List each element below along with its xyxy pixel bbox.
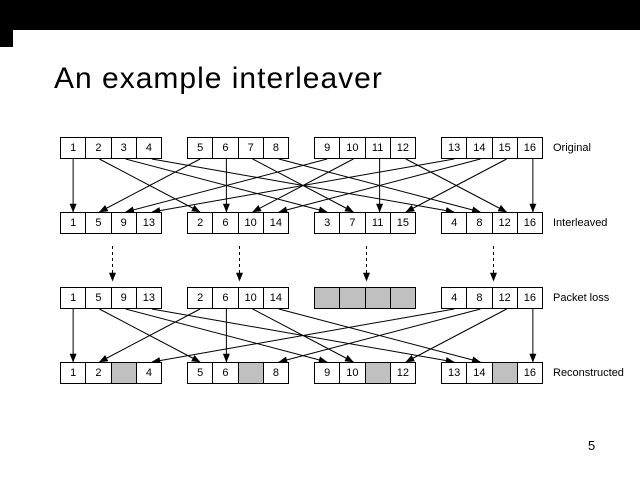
interleave-arrow [279, 159, 481, 212]
data-cell: 11 [365, 212, 391, 234]
cell-group: 481216 [441, 287, 543, 309]
deinterleave-arrow [279, 309, 481, 362]
cell-group: 124 [60, 362, 162, 384]
cell-group: 568 [187, 362, 289, 384]
data-cell: 14 [466, 362, 492, 384]
interleave-arrow [99, 159, 200, 212]
cell-group: 15913 [60, 212, 162, 234]
data-cell: 12 [390, 362, 416, 384]
data-cell: 10 [339, 137, 365, 159]
deinterleave-arrow [152, 309, 454, 362]
data-cell: 15 [390, 212, 416, 234]
lost-cell [365, 362, 391, 384]
cell-group: 1234 [60, 137, 162, 159]
interleave-arrow [152, 159, 454, 212]
lost-cell [238, 362, 264, 384]
data-cell: 6 [212, 212, 238, 234]
lost-cell [314, 287, 340, 309]
data-cell: 7 [238, 137, 264, 159]
interleave-arrow [406, 159, 507, 212]
lost-cell [365, 287, 391, 309]
data-cell: 8 [466, 287, 492, 309]
deinterleave-arrow [99, 309, 200, 362]
data-cell: 2 [85, 137, 111, 159]
page-number: 5 [588, 438, 595, 453]
data-cell: 3 [314, 212, 340, 234]
cell-group: 15913 [60, 287, 162, 309]
interleave-arrow [253, 159, 354, 212]
interleave-arrow [126, 159, 328, 212]
data-cell: 4 [441, 287, 467, 309]
deinterleave-arrow [406, 309, 507, 362]
data-cell: 9 [314, 137, 340, 159]
data-cell: 5 [85, 287, 111, 309]
lost-cell [390, 287, 416, 309]
data-cell: 9 [111, 212, 137, 234]
data-cell: 5 [187, 362, 213, 384]
data-cell: 10 [238, 287, 264, 309]
cell-group: 131416 [441, 362, 543, 384]
data-cell: 16 [517, 137, 543, 159]
data-cell: 16 [517, 212, 543, 234]
data-cell: 7 [339, 212, 365, 234]
data-cell: 4 [136, 362, 162, 384]
data-cell: 13 [136, 212, 162, 234]
row-label-packet-loss: Packet loss [553, 292, 609, 304]
data-cell: 14 [263, 212, 289, 234]
deinterleave-arrow [126, 309, 328, 362]
row-label-interleaved: Interleaved [553, 217, 607, 229]
data-cell: 1 [60, 212, 86, 234]
deinterleave-arrow [279, 309, 481, 362]
cell-group: 371115 [314, 212, 416, 234]
data-cell: 12 [492, 287, 518, 309]
arrows-layer [0, 0, 640, 480]
data-cell: 6 [212, 287, 238, 309]
data-cell: 5 [85, 212, 111, 234]
data-cell: 9 [314, 362, 340, 384]
data-cell: 1 [60, 287, 86, 309]
data-cell: 1 [60, 362, 86, 384]
data-cell: 4 [441, 212, 467, 234]
cell-group: 261014 [187, 287, 289, 309]
interleave-arrow [253, 159, 354, 212]
data-cell: 14 [466, 137, 492, 159]
data-cell: 13 [136, 287, 162, 309]
data-cell: 16 [517, 362, 543, 384]
data-cell: 10 [339, 362, 365, 384]
interleave-arrow [279, 159, 481, 212]
row-label-reconstructed: Reconstructed [553, 367, 624, 379]
data-cell: 13 [441, 362, 467, 384]
cell-group: 13141516 [441, 137, 543, 159]
interleaver-diagram: 12345678910111213141516Original159132610… [0, 0, 640, 480]
data-cell: 6 [212, 137, 238, 159]
data-cell: 14 [263, 287, 289, 309]
interleave-arrow [152, 159, 454, 212]
data-cell: 10 [238, 212, 264, 234]
data-cell: 3 [111, 137, 137, 159]
interleave-arrow [99, 159, 200, 212]
data-cell: 2 [85, 362, 111, 384]
cell-group: 481216 [441, 212, 543, 234]
deinterleave-arrow [99, 309, 200, 362]
deinterleave-arrow [253, 309, 354, 362]
data-cell: 2 [187, 212, 213, 234]
interleave-arrow [126, 159, 328, 212]
cell-group: 261014 [187, 212, 289, 234]
cell-group: 91012 [314, 362, 416, 384]
lost-cell [492, 362, 518, 384]
data-cell: 12 [390, 137, 416, 159]
data-cell: 12 [492, 212, 518, 234]
data-cell: 6 [212, 362, 238, 384]
data-cell: 16 [517, 287, 543, 309]
data-cell: 1 [60, 137, 86, 159]
data-cell: 15 [492, 137, 518, 159]
deinterleave-arrow [152, 309, 454, 362]
data-cell: 13 [441, 137, 467, 159]
lost-cell [339, 287, 365, 309]
interleave-arrow [406, 159, 507, 212]
data-cell: 8 [466, 212, 492, 234]
cell-group [314, 287, 416, 309]
data-cell: 8 [263, 362, 289, 384]
data-cell: 9 [111, 287, 137, 309]
data-cell: 5 [187, 137, 213, 159]
cell-group: 5678 [187, 137, 289, 159]
row-label-original: Original [553, 142, 591, 154]
slide: An example interleaver 12345678910111213… [0, 0, 640, 480]
data-cell: 4 [136, 137, 162, 159]
data-cell: 11 [365, 137, 391, 159]
cell-group: 9101112 [314, 137, 416, 159]
lost-cell [111, 362, 137, 384]
data-cell: 2 [187, 287, 213, 309]
data-cell: 8 [263, 137, 289, 159]
